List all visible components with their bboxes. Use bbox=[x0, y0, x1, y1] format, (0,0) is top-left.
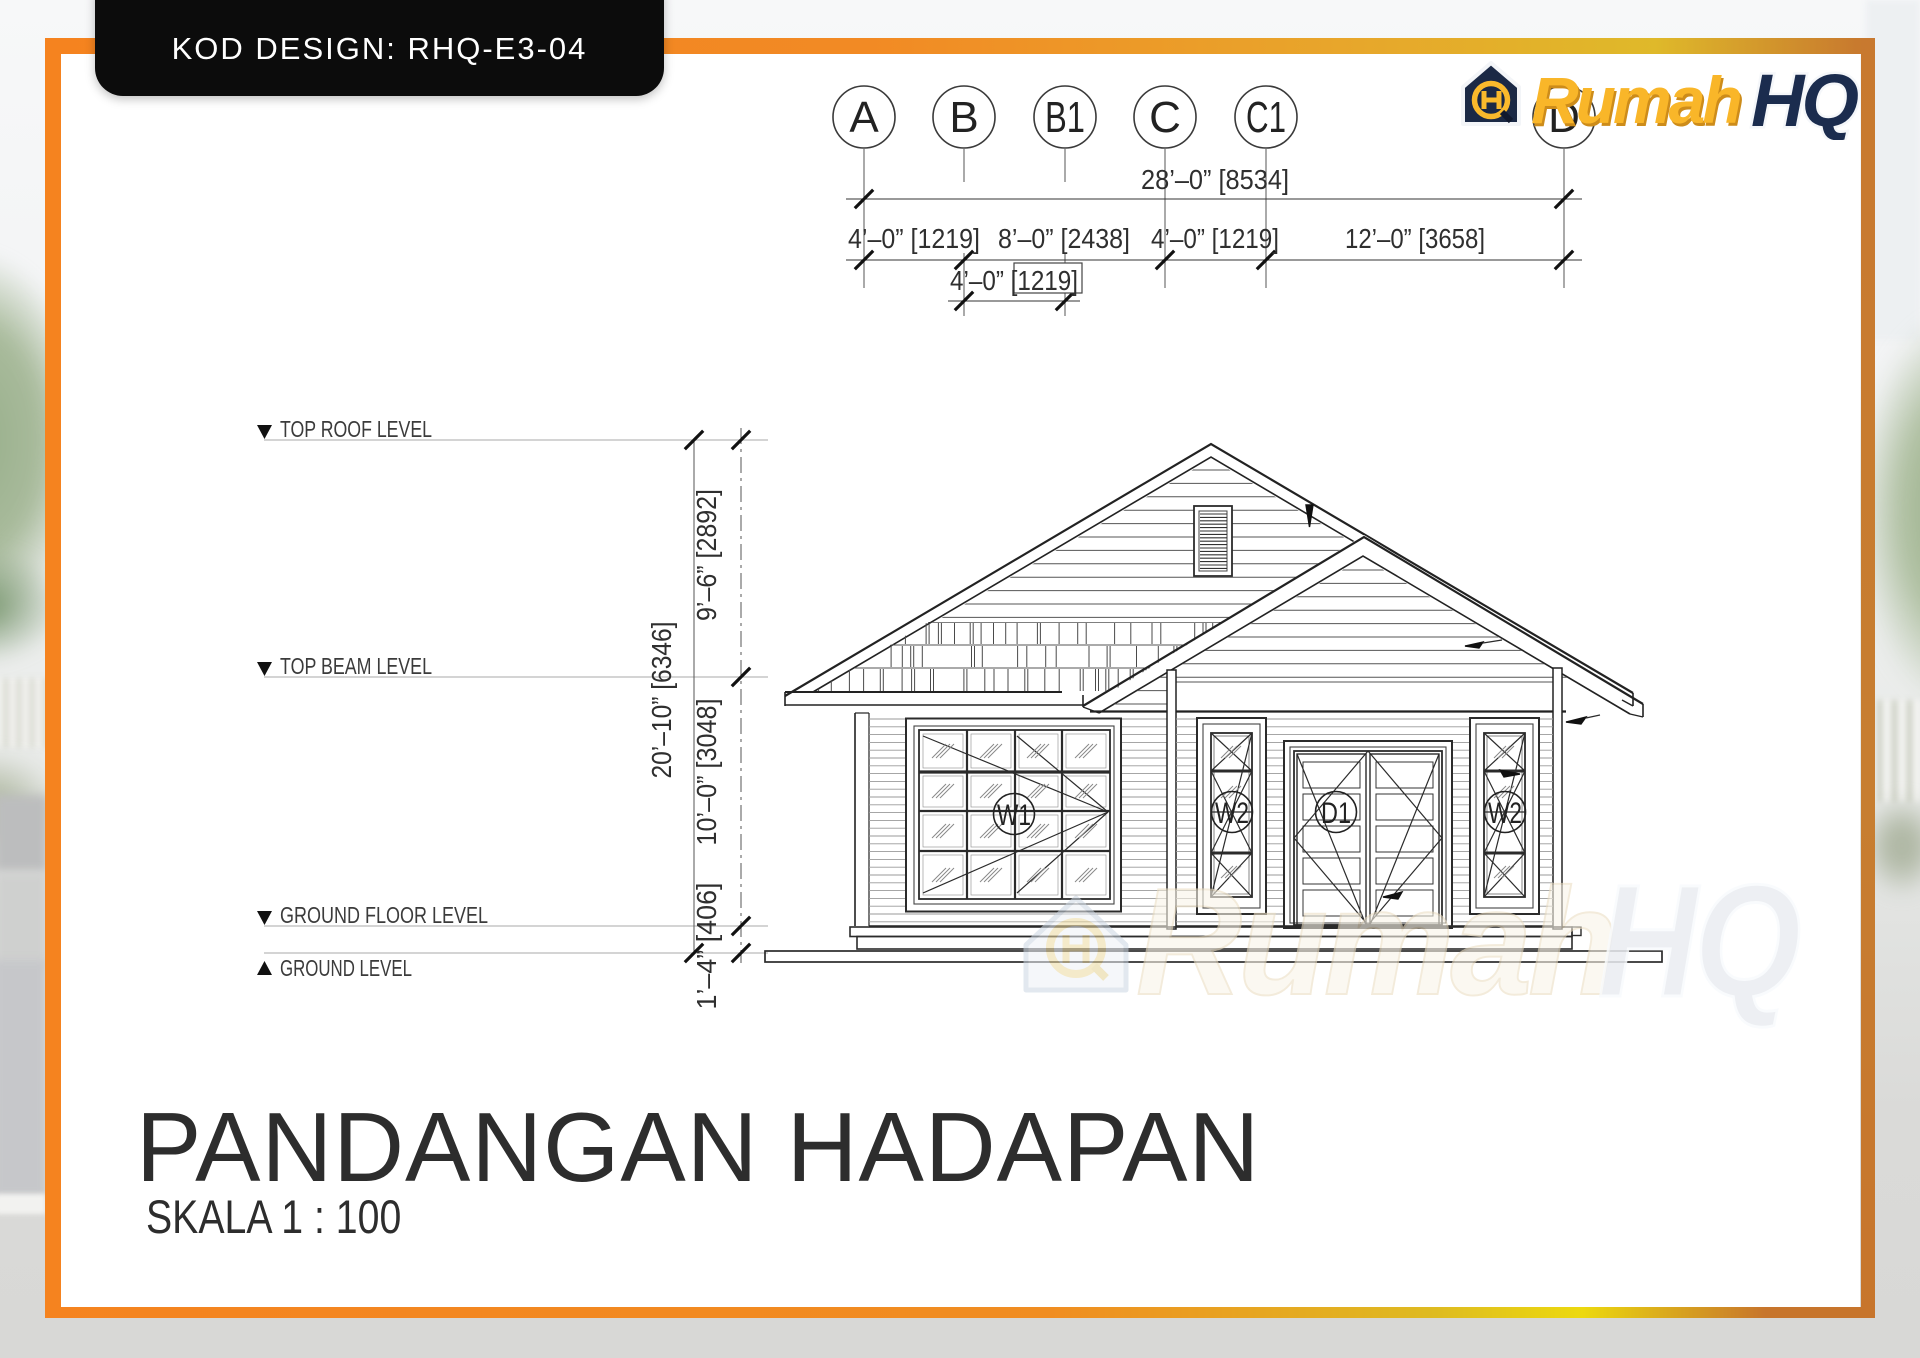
svg-text:GROUND LEVEL: GROUND LEVEL bbox=[280, 955, 412, 981]
svg-text:D1: D1 bbox=[1321, 797, 1351, 830]
svg-text:TOP ROOF LEVEL: TOP ROOF LEVEL bbox=[280, 416, 432, 442]
svg-text:20’–10” [6346]: 20’–10” [6346] bbox=[646, 622, 677, 779]
svg-text:4’–0” [1219]: 4’–0” [1219] bbox=[950, 265, 1078, 296]
svg-text:HQ: HQ bbox=[1751, 60, 1858, 140]
svg-text:GROUND FLOOR LEVEL: GROUND FLOOR LEVEL bbox=[280, 902, 488, 928]
svg-text:9’–6” [2892]: 9’–6” [2892] bbox=[691, 489, 722, 621]
svg-text:C1: C1 bbox=[1246, 93, 1286, 142]
svg-text:4’–0” [1219]: 4’–0” [1219] bbox=[848, 223, 980, 254]
svg-text:HQ: HQ bbox=[1598, 851, 1799, 1030]
svg-text:TOP BEAM LEVEL: TOP BEAM LEVEL bbox=[280, 653, 432, 679]
svg-text:Rumah: Rumah bbox=[1136, 857, 1614, 1027]
svg-text:W2: W2 bbox=[1215, 797, 1249, 830]
svg-text:8’–0” [2438]: 8’–0” [2438] bbox=[998, 223, 1130, 254]
svg-text:12’–0” [3658]: 12’–0” [3658] bbox=[1345, 223, 1485, 254]
svg-text:B1: B1 bbox=[1045, 93, 1085, 142]
svg-text:C: C bbox=[1149, 93, 1181, 142]
svg-text:10’–0” [3048]: 10’–0” [3048] bbox=[691, 699, 722, 846]
svg-text:W1: W1 bbox=[997, 799, 1031, 832]
svg-text:28’–0” [8534]: 28’–0” [8534] bbox=[1141, 164, 1289, 195]
svg-text:4’–0” [1219]: 4’–0” [1219] bbox=[1151, 223, 1279, 254]
svg-text:1’–4” [406]: 1’–4” [406] bbox=[691, 883, 722, 1010]
svg-text:Rumah: Rumah bbox=[1531, 63, 1740, 137]
svg-text:B: B bbox=[949, 93, 978, 142]
svg-text:A: A bbox=[849, 93, 879, 142]
svg-text:W2: W2 bbox=[1488, 797, 1522, 830]
